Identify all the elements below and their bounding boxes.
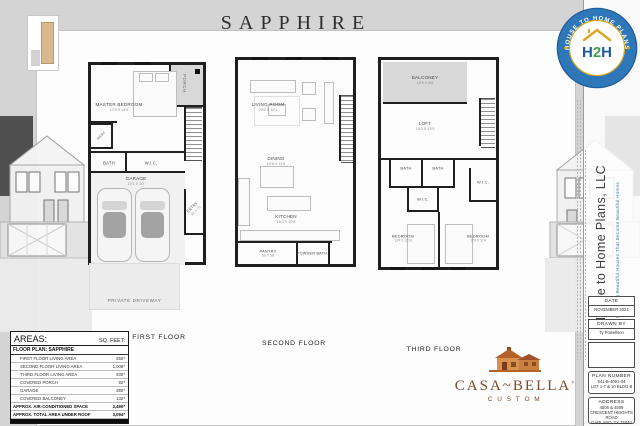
detail-thumbnail — [27, 15, 59, 71]
interior-wall — [479, 98, 481, 146]
table-row-total: APPROX. TOTAL AREA UNDER ROOF3,094* — [11, 411, 128, 419]
caption-first-floor: FIRST FLOOR — [132, 334, 186, 341]
stairs — [186, 107, 202, 161]
driveway-label: PRIVATE DRIVEWAY — [108, 298, 162, 303]
bed — [445, 224, 473, 264]
badge-gold-dot — [627, 47, 630, 50]
room-label-dining: DINING 14'8 X 11'6 — [267, 156, 285, 166]
fine-print-line — [577, 100, 578, 360]
interior-wall — [469, 200, 496, 202]
table-bottom-bar — [11, 419, 128, 423]
table-row: COVERED BALCONEY132* — [11, 395, 128, 403]
interior-wall — [438, 212, 440, 267]
window-tick — [286, 57, 302, 60]
room-label-entry: ENTRY 4'2 X 7'2 — [186, 201, 202, 217]
registered-mark: ® — [571, 380, 574, 385]
interior-wall — [389, 186, 455, 188]
badge-gold-dot — [564, 47, 567, 50]
areas-table-header: AREAS: SQ. FEET: — [11, 332, 128, 346]
room-label-pantry: PANTRY 5'8 X 5'8 — [259, 249, 276, 258]
room-label-porch: PORCH — [182, 74, 187, 93]
address-line3: GARLAND, TX 75040 — [589, 420, 634, 425]
interior-wall — [184, 189, 186, 235]
room-label-balcony: BALCONEY 19'9 X 6'6 — [412, 75, 439, 85]
plan-number-line2: LOT 1-7 & 10 BLDG B — [589, 384, 634, 389]
page-title: SAPPHIRE — [186, 12, 406, 35]
areas-table: AREAS: SQ. FEET: FLOOR PLAN: SAPPHIRE FI… — [10, 331, 129, 424]
room-label-bedroom-right: BEDROOM 12'4 X 11'4 — [467, 234, 489, 243]
thumbnail-tan-detail — [41, 22, 54, 64]
interior-wall — [125, 151, 127, 173]
h2h-logo-badge: HOUSE TO HOME PLANS DESIGNING BEAUTIFUL … — [556, 7, 638, 89]
interior-wall — [91, 151, 185, 153]
pillow — [155, 73, 169, 82]
window-tick — [135, 62, 151, 65]
fine-print-line — [585, 150, 586, 360]
room-label-bath-1: BATH — [400, 166, 411, 171]
interior-wall — [389, 160, 391, 188]
interior-wall — [407, 210, 439, 212]
car-top-view — [135, 188, 170, 262]
interior-wall — [469, 168, 471, 202]
bed — [407, 224, 435, 264]
areas-unit-header: SQ. FEET: — [99, 338, 125, 344]
armchair — [302, 82, 316, 95]
thumbnail-gray-detail — [31, 50, 40, 66]
table-row: THIRD FLOOR LIVING AREA930* — [11, 371, 128, 379]
stairs — [341, 95, 353, 163]
room-label-wic-right: W.I.C. — [477, 180, 489, 185]
floorplan-second-floor: LIVING ROOM 20'6 X 16'1 DINING 14'8 X 11… — [235, 57, 356, 267]
casa-bella-logo: CASA~BELLA® C U S T O M — [452, 346, 577, 403]
fridge-counter — [238, 178, 250, 226]
dining-table — [260, 166, 294, 188]
armchair — [302, 108, 316, 121]
caption-second-floor: SECOND FLOOR — [262, 340, 326, 347]
date-value: NOVEMBER 2024 — [589, 306, 634, 313]
interior-wall — [407, 188, 409, 212]
room-label-bath-2: BATH — [432, 166, 443, 171]
window-tick — [252, 57, 268, 60]
left-elevation-rendering — [0, 110, 92, 332]
plan-number-label: PLAN NUMBER — [589, 372, 634, 379]
table-row: SECOND FLOOR LIVING AREA1,008* — [11, 363, 128, 371]
plan-sheet-page: SAPPHIRE PORCH MASTER BEDROOM 17'3 X 14'… — [0, 0, 640, 426]
plan-number-box: PLAN NUMBER 541-B-4091-04 LOT 1-7 & 10 B… — [588, 371, 635, 394]
table-row: COVERED PORCH92* — [11, 379, 128, 387]
room-label-wic: W.I.C. — [145, 160, 158, 165]
badge-monogram: H2H — [582, 44, 612, 61]
interior-wall — [437, 188, 439, 212]
interior-wall — [381, 158, 496, 160]
builder-subtitle: C U S T O M — [452, 396, 577, 403]
table-row: FIRST FLOOR LIVING AREA550* — [11, 355, 128, 363]
room-label-kitchen: KITCHEN 15'3 X 10'8 — [275, 214, 297, 224]
kitchen-island — [267, 196, 311, 211]
car-roof — [103, 212, 126, 238]
plan-marker — [195, 69, 200, 74]
interior-wall — [383, 102, 467, 104]
company-name-vertical: House to Home Plans, LLC — [594, 116, 608, 326]
drawn-by-value: Ty Powellson — [589, 329, 634, 336]
window-tick — [451, 267, 465, 270]
floorplan-first-floor: PORCH MASTER BEDROOM 17'3 X 14'6 WASH BA… — [88, 62, 206, 265]
kitchen-counter — [240, 230, 340, 241]
window-tick — [322, 57, 338, 60]
table-row-total: APPROX. AIR-CONDITIONED SPACE2,490* — [11, 403, 128, 411]
interior-wall — [421, 160, 423, 188]
address-box: ADDRESS 4505 & 4509 CRESCENT HEIGHTS ROA… — [588, 397, 635, 424]
car-windshield — [140, 201, 165, 210]
interior-wall — [339, 95, 341, 161]
room-label-master-bedroom: MASTER BEDROOM 17'3 X 14'6 — [96, 102, 143, 112]
drawn-by-label: DRAWN BY — [589, 320, 634, 329]
room-label-wic-center: W.I.C. — [417, 197, 429, 202]
areas-plan-row: FLOOR PLAN: SAPPHIRE — [11, 346, 128, 355]
car-roof — [141, 212, 164, 238]
builder-name: CASA~BELLA — [455, 378, 571, 394]
empty-title-box — [588, 342, 635, 368]
car-windshield — [102, 201, 127, 210]
interior-wall — [453, 160, 455, 188]
floorplan-third-floor: BALCONEY 19'9 X 6'6 LOFT 15'3 X 13'9 BAT… — [378, 57, 499, 270]
stairs — [481, 98, 495, 148]
fine-print-line — [580, 100, 581, 360]
casa-bella-house-icon — [487, 346, 543, 372]
window-tick — [101, 62, 117, 65]
room-label-bedroom-left: BEDROOM 13'4 X 11'10 — [392, 234, 414, 243]
room-label-loft: LOFT 15'3 X 13'9 — [416, 121, 435, 131]
room-label-living-room: LIVING ROOM 20'6 X 16'1 — [252, 102, 285, 112]
table-row: GARAGE380* — [11, 387, 128, 395]
sofa — [250, 80, 296, 93]
room-label-powder-bath: POWDER BATH — [297, 252, 327, 257]
room-label-bath: BATH — [103, 160, 115, 165]
company-tagline-vertical: Designing Beautiful Houses That Become B… — [615, 128, 620, 318]
window-tick — [421, 267, 435, 270]
date-box: DATE NOVEMBER 2024 — [588, 296, 635, 317]
window-tick — [391, 267, 405, 270]
date-label: DATE — [589, 297, 634, 306]
car-top-view — [97, 188, 132, 262]
address-line2: CRESCENT HEIGHTS ROAD — [589, 410, 634, 420]
interior-wall — [184, 233, 203, 235]
pillow — [139, 73, 153, 82]
areas-title: AREAS: — [14, 334, 47, 344]
interior-wall — [328, 243, 330, 264]
drawn-by-box: DRAWN BY Ty Powellson — [588, 319, 635, 340]
private-driveway: PRIVATE DRIVEWAY — [89, 263, 180, 310]
interior-wall — [238, 241, 332, 243]
room-label-garage: GARAGE 19'1 X 20' — [126, 176, 147, 186]
media-cabinet — [324, 82, 334, 124]
